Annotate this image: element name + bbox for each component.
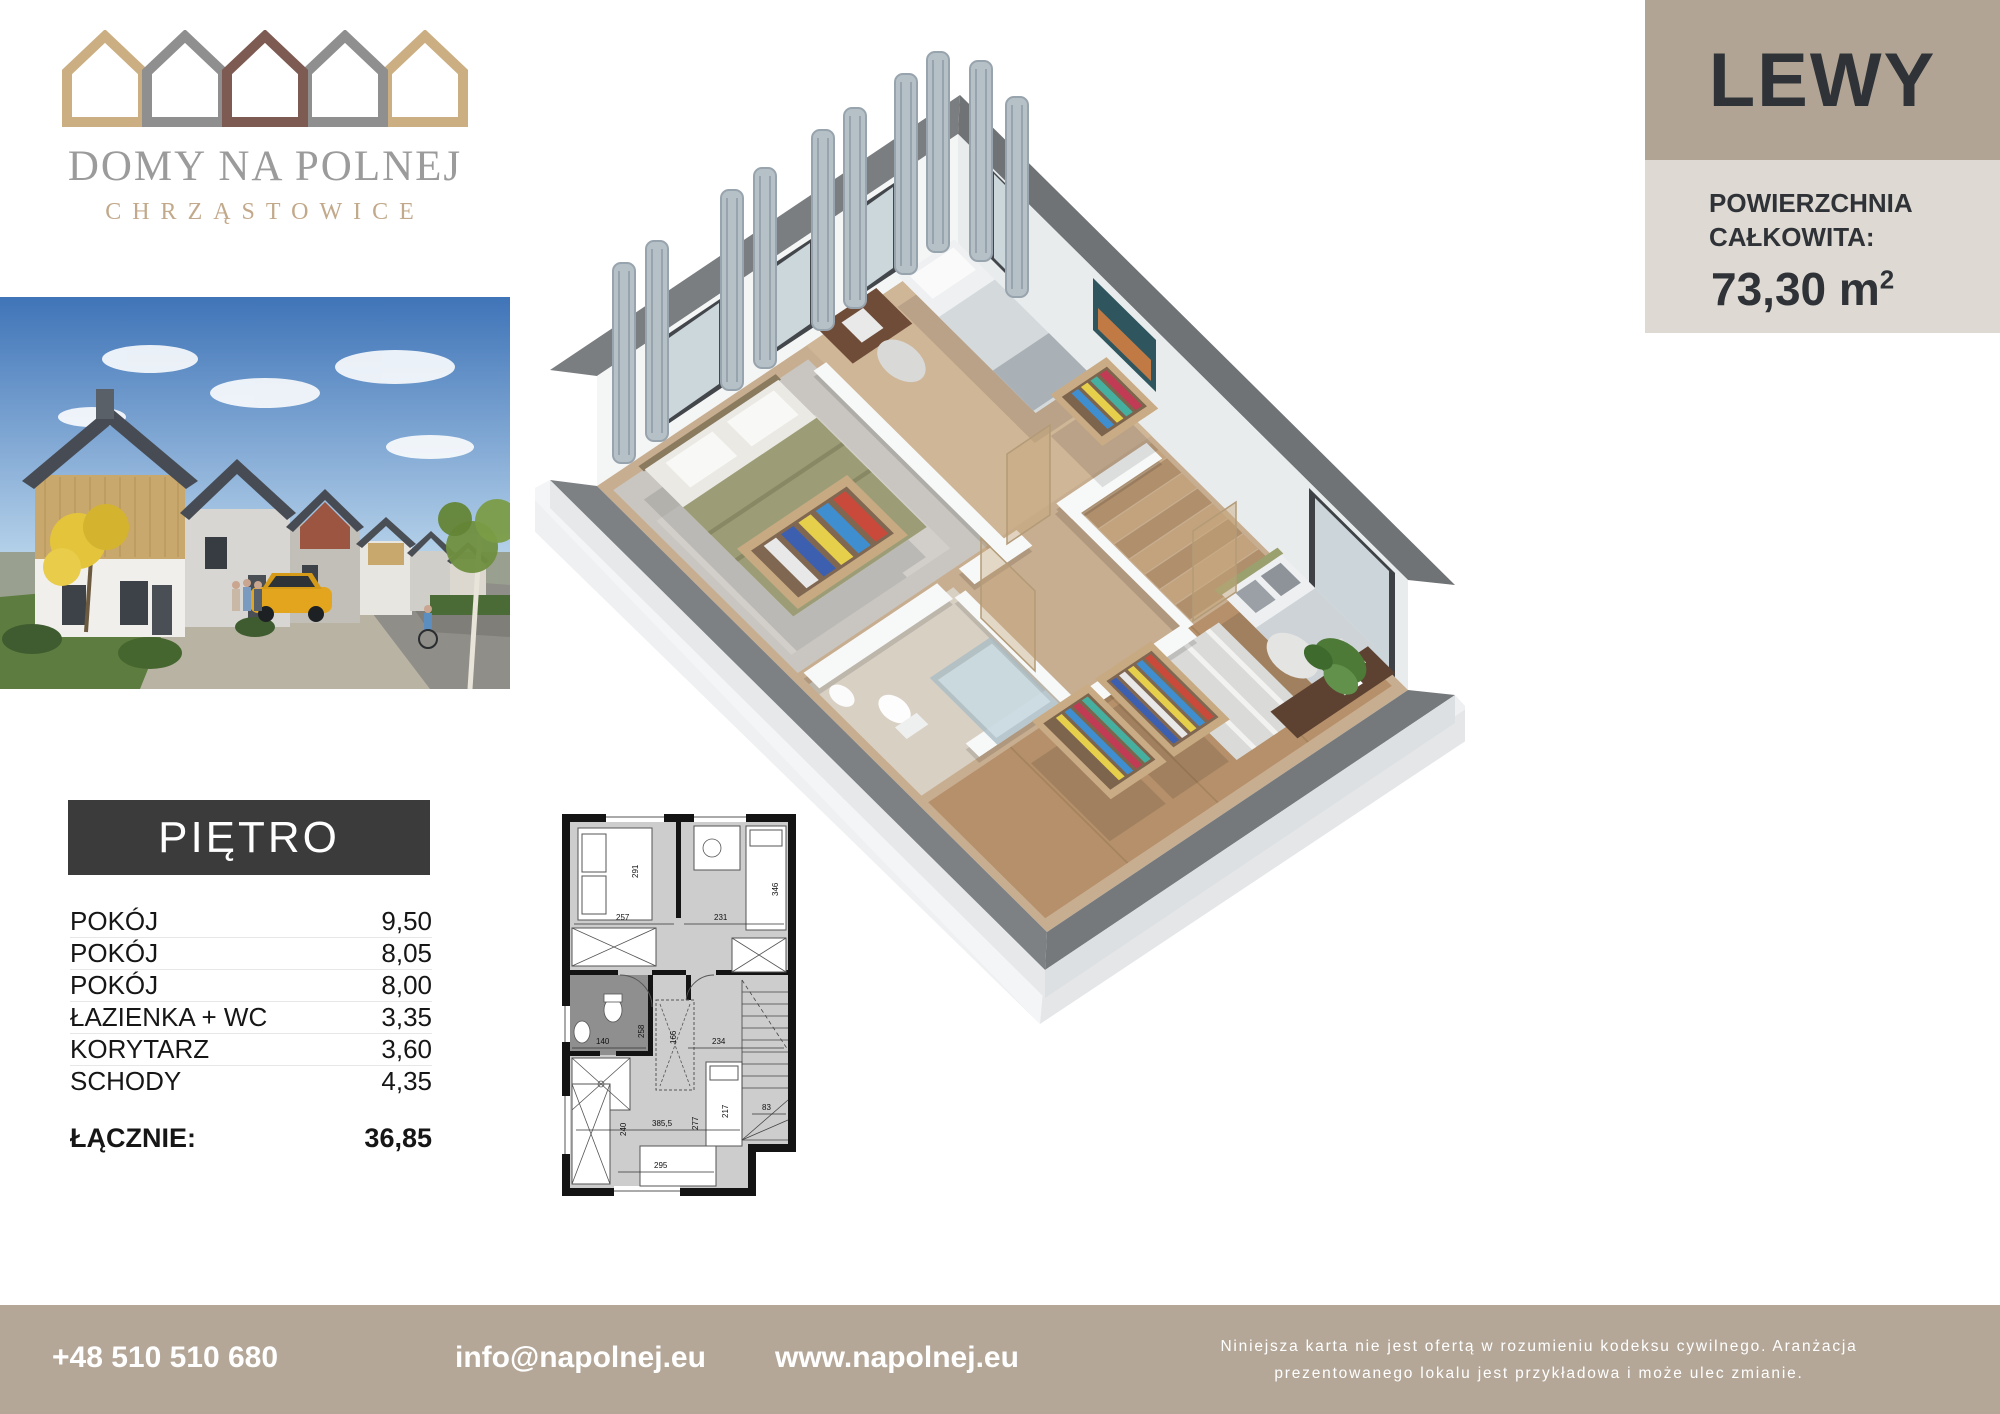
- svg-text:385,5: 385,5: [652, 1119, 673, 1128]
- svg-text:166: 166: [669, 1030, 678, 1044]
- svg-text:295: 295: [654, 1161, 668, 1170]
- svg-text:291: 291: [631, 864, 640, 878]
- area-label: POWIERZCHNIA CAŁKOWITA:: [1645, 160, 2000, 254]
- property-card: DOMY NA POLNEJ CHRZĄSTOWICE: [0, 0, 2000, 1414]
- floor-title: PIĘTRO: [68, 800, 430, 875]
- svg-text:234: 234: [712, 1037, 726, 1046]
- svg-text:257: 257: [616, 913, 630, 922]
- plan-closet-dashed: [656, 1000, 694, 1090]
- svg-text:277: 277: [691, 1116, 700, 1130]
- estate-photo: [0, 297, 510, 689]
- table-row: ŁAZIENKA + WC3,35: [70, 1001, 432, 1033]
- svg-text:140: 140: [596, 1037, 610, 1046]
- email-address: info@napolnej.eu: [455, 1341, 706, 1375]
- unit-name: LEWY: [1709, 37, 1937, 124]
- svg-text:83: 83: [762, 1103, 771, 1112]
- svg-text:231: 231: [714, 913, 728, 922]
- plan-desk-2: [640, 1146, 716, 1186]
- table-row: POKÓJ8,05: [70, 937, 432, 969]
- logo-houses-icon: [62, 30, 468, 128]
- unit-name-panel: LEWY: [1645, 0, 2000, 160]
- disclaimer: Niniejsza karta nie jest ofertą w rozumi…: [1118, 1333, 1960, 1387]
- footer-bar: +48 510 510 680 info@napolnej.eu www.nap…: [0, 1305, 2000, 1414]
- brand-name: DOMY NA POLNEJ: [60, 142, 470, 191]
- area-value: 73,30 m2: [1645, 254, 2000, 316]
- svg-text:217: 217: [721, 1104, 730, 1118]
- phone-number: +48 510 510 680: [52, 1341, 278, 1375]
- table-row: KORYTARZ3,60: [70, 1033, 432, 1065]
- table-row: POKÓJ8,00: [70, 969, 432, 1001]
- floor-plan-2d: 257 231 291 346 140 258 166 234 240 385,…: [556, 800, 803, 1203]
- table-total-row: ŁĄCZNIE:36,85: [70, 1123, 432, 1154]
- table-row: POKÓJ9,50: [70, 906, 432, 937]
- brand-logo: DOMY NA POLNEJ CHRZĄSTOWICE: [60, 30, 470, 226]
- brand-location: CHRZĄSTOWICE: [60, 199, 470, 226]
- svg-text:258: 258: [637, 1024, 646, 1038]
- table-row: SCHODY4,35: [70, 1065, 432, 1097]
- website-url: www.napolnej.eu: [775, 1341, 1019, 1375]
- svg-text:240: 240: [619, 1122, 628, 1136]
- room-area-table: POKÓJ9,50 POKÓJ8,05 POKÓJ8,00 ŁAZIENKA +…: [70, 906, 432, 1154]
- unit-area-panel: POWIERZCHNIA CAŁKOWITA: 73,30 m2: [1645, 160, 2000, 333]
- svg-text:346: 346: [771, 882, 780, 896]
